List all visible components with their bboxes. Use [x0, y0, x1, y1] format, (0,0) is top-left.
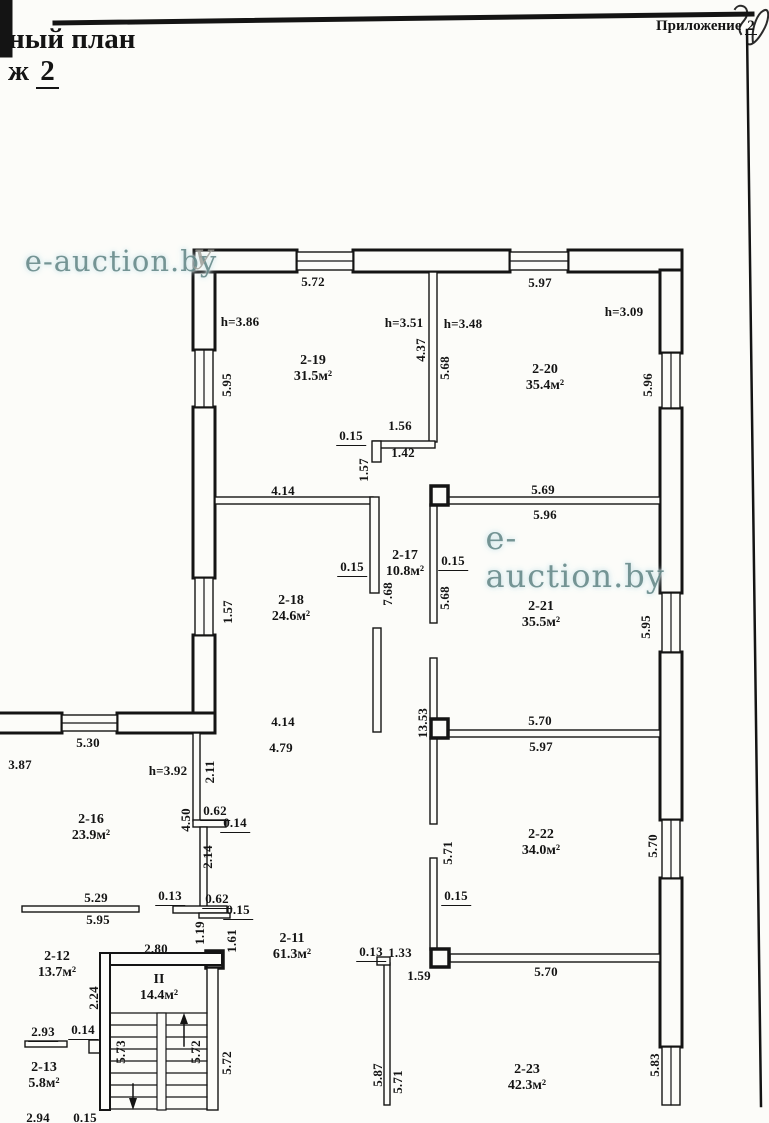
- dimension-label: 5.95: [638, 615, 654, 639]
- dimension-label: 5.68: [437, 356, 453, 380]
- watermark-eauction-top: e-auction.by: [25, 244, 217, 278]
- watermark-eauction-middle: e-auction.by: [486, 519, 675, 595]
- room-label-2-16: 2-1623.9м²: [72, 812, 110, 844]
- dimension-label: 5.29: [84, 890, 108, 906]
- dimension-label: 13.53: [415, 708, 431, 738]
- dimension-label: 5.97: [529, 739, 553, 755]
- height-label: h=3.86: [221, 314, 260, 330]
- dimension-label: 0.15: [73, 1110, 97, 1123]
- dimension-label: 5.70: [645, 834, 661, 858]
- room-label-2-13: 2-135.8м²: [28, 1060, 59, 1092]
- room-label-II: II14.4м²: [140, 972, 178, 1004]
- dimension-label: 4.50: [178, 808, 194, 832]
- dimension-label: 3.87: [8, 757, 32, 773]
- dimension-label: 0.14: [68, 1022, 98, 1040]
- dimension-label: 1.61: [224, 929, 240, 953]
- height-label: h=3.09: [605, 304, 644, 320]
- dimension-label: 4.79: [269, 740, 293, 756]
- dimension-label: 5.72: [188, 1040, 204, 1064]
- dimension-label: 2.93: [28, 1024, 58, 1042]
- dimension-label: 2.94: [26, 1110, 50, 1123]
- dimension-label: 1.57: [220, 600, 236, 624]
- dimension-label: 7.68: [380, 582, 396, 606]
- room-label-2-18: 2-1824.6м²: [272, 593, 310, 625]
- dimension-label: 5.72: [301, 274, 325, 290]
- height-label: h=3.51: [385, 315, 424, 331]
- dimension-label: 1.57: [356, 458, 372, 482]
- dimension-label: 0.15: [336, 428, 366, 446]
- dimension-label: 5.70: [534, 964, 558, 980]
- dimension-label: 5.95: [86, 912, 110, 928]
- stray-pen-mark: У: [193, 246, 213, 277]
- dimension-label: 0.13: [356, 944, 386, 962]
- dimension-label: 5.71: [390, 1070, 406, 1094]
- dimension-label: 1.19: [192, 921, 208, 945]
- room-label-2-22: 2-2234.0м²: [522, 827, 560, 859]
- dimension-label: 5.69: [531, 482, 555, 498]
- height-label: h=3.92: [149, 763, 188, 779]
- room-label-2-17: 2-1710.8м²: [386, 548, 424, 580]
- dimension-label: 2.24: [86, 986, 102, 1010]
- room-label-2-11: 2-1161.3м²: [273, 931, 311, 963]
- dimension-label: 5.30: [76, 735, 100, 751]
- dimension-label: 4.14: [271, 483, 295, 499]
- room-label-2-12: 2-1213.7м²: [38, 949, 76, 981]
- room-label-2-19: 2-1931.5м²: [294, 353, 332, 385]
- dimension-label: 1.59: [407, 968, 431, 984]
- dimension-label: 5.73: [113, 1040, 129, 1064]
- room-label-2-20: 2-2035.4м²: [526, 362, 564, 394]
- dimension-label: 0.15: [438, 553, 468, 571]
- dimension-label: 5.68: [437, 586, 453, 610]
- dimension-label: 5.83: [647, 1053, 663, 1077]
- dimension-label: 0.13: [155, 888, 185, 906]
- dimension-label: 5.70: [528, 713, 552, 729]
- room-label-2-23: 2-2342.3м²: [508, 1062, 546, 1094]
- dimension-label: 5.71: [440, 841, 456, 865]
- dimension-label: 5.97: [528, 275, 552, 291]
- dimension-label: 5.96: [640, 373, 656, 397]
- dimension-label: 0.14: [220, 815, 250, 833]
- dimension-label: 0.15: [337, 559, 367, 577]
- dimension-label: 4.14: [271, 714, 295, 730]
- dimension-label: 0.15: [223, 902, 253, 920]
- dimension-label: 2.14: [200, 845, 216, 869]
- dimension-label: 4.37: [413, 338, 429, 362]
- dimension-label: 1.42: [391, 445, 415, 461]
- dimension-label: 5.95: [219, 373, 235, 397]
- scanned-floor-plan-page: ный план ж 2 Приложение 2 5.725.97h=3.86…: [0, 0, 769, 1123]
- dimension-label: 1.33: [388, 945, 412, 961]
- dimension-label: 2.11: [202, 761, 218, 784]
- dimension-label: 5.87: [370, 1063, 386, 1087]
- dimension-label: 0.15: [441, 888, 471, 906]
- dimension-label: 1.56: [388, 418, 412, 434]
- room-label-2-21: 2-2135.5м²: [522, 599, 560, 631]
- height-label: h=3.48: [444, 316, 483, 332]
- dimension-label: 2.80: [144, 941, 168, 957]
- dimension-label: 5.72: [219, 1051, 235, 1075]
